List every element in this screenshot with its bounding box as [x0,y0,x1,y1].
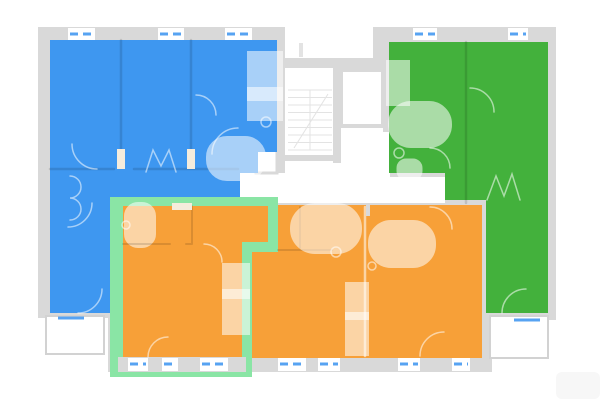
plan-marking [229,296,243,328]
floor-plan-viewer [0,0,600,401]
floor-plan-svg [0,0,600,401]
balcony [46,316,104,354]
plan-marking [229,270,243,292]
plan-marking [221,151,251,166]
plan-marking [351,288,363,314]
plan-marking [132,210,148,240]
plan-marking [256,96,274,112]
balcony-outline [46,316,104,354]
balcony-outline [490,316,548,358]
plan-marking [404,117,436,132]
plan-marking [187,149,195,169]
elevator-shaft [341,70,383,126]
plan-marking [117,149,125,169]
stair-wall [285,155,341,161]
plan-marking [351,318,363,350]
plan-marking [300,44,302,56]
plan-marking [172,203,192,210]
plan-marking [403,165,416,174]
plan-marking [385,237,419,251]
terrace-outline [556,372,600,399]
plan-marking [308,221,344,236]
plan-marking [392,66,404,100]
balcony [490,316,548,358]
plan-marking [367,205,369,215]
